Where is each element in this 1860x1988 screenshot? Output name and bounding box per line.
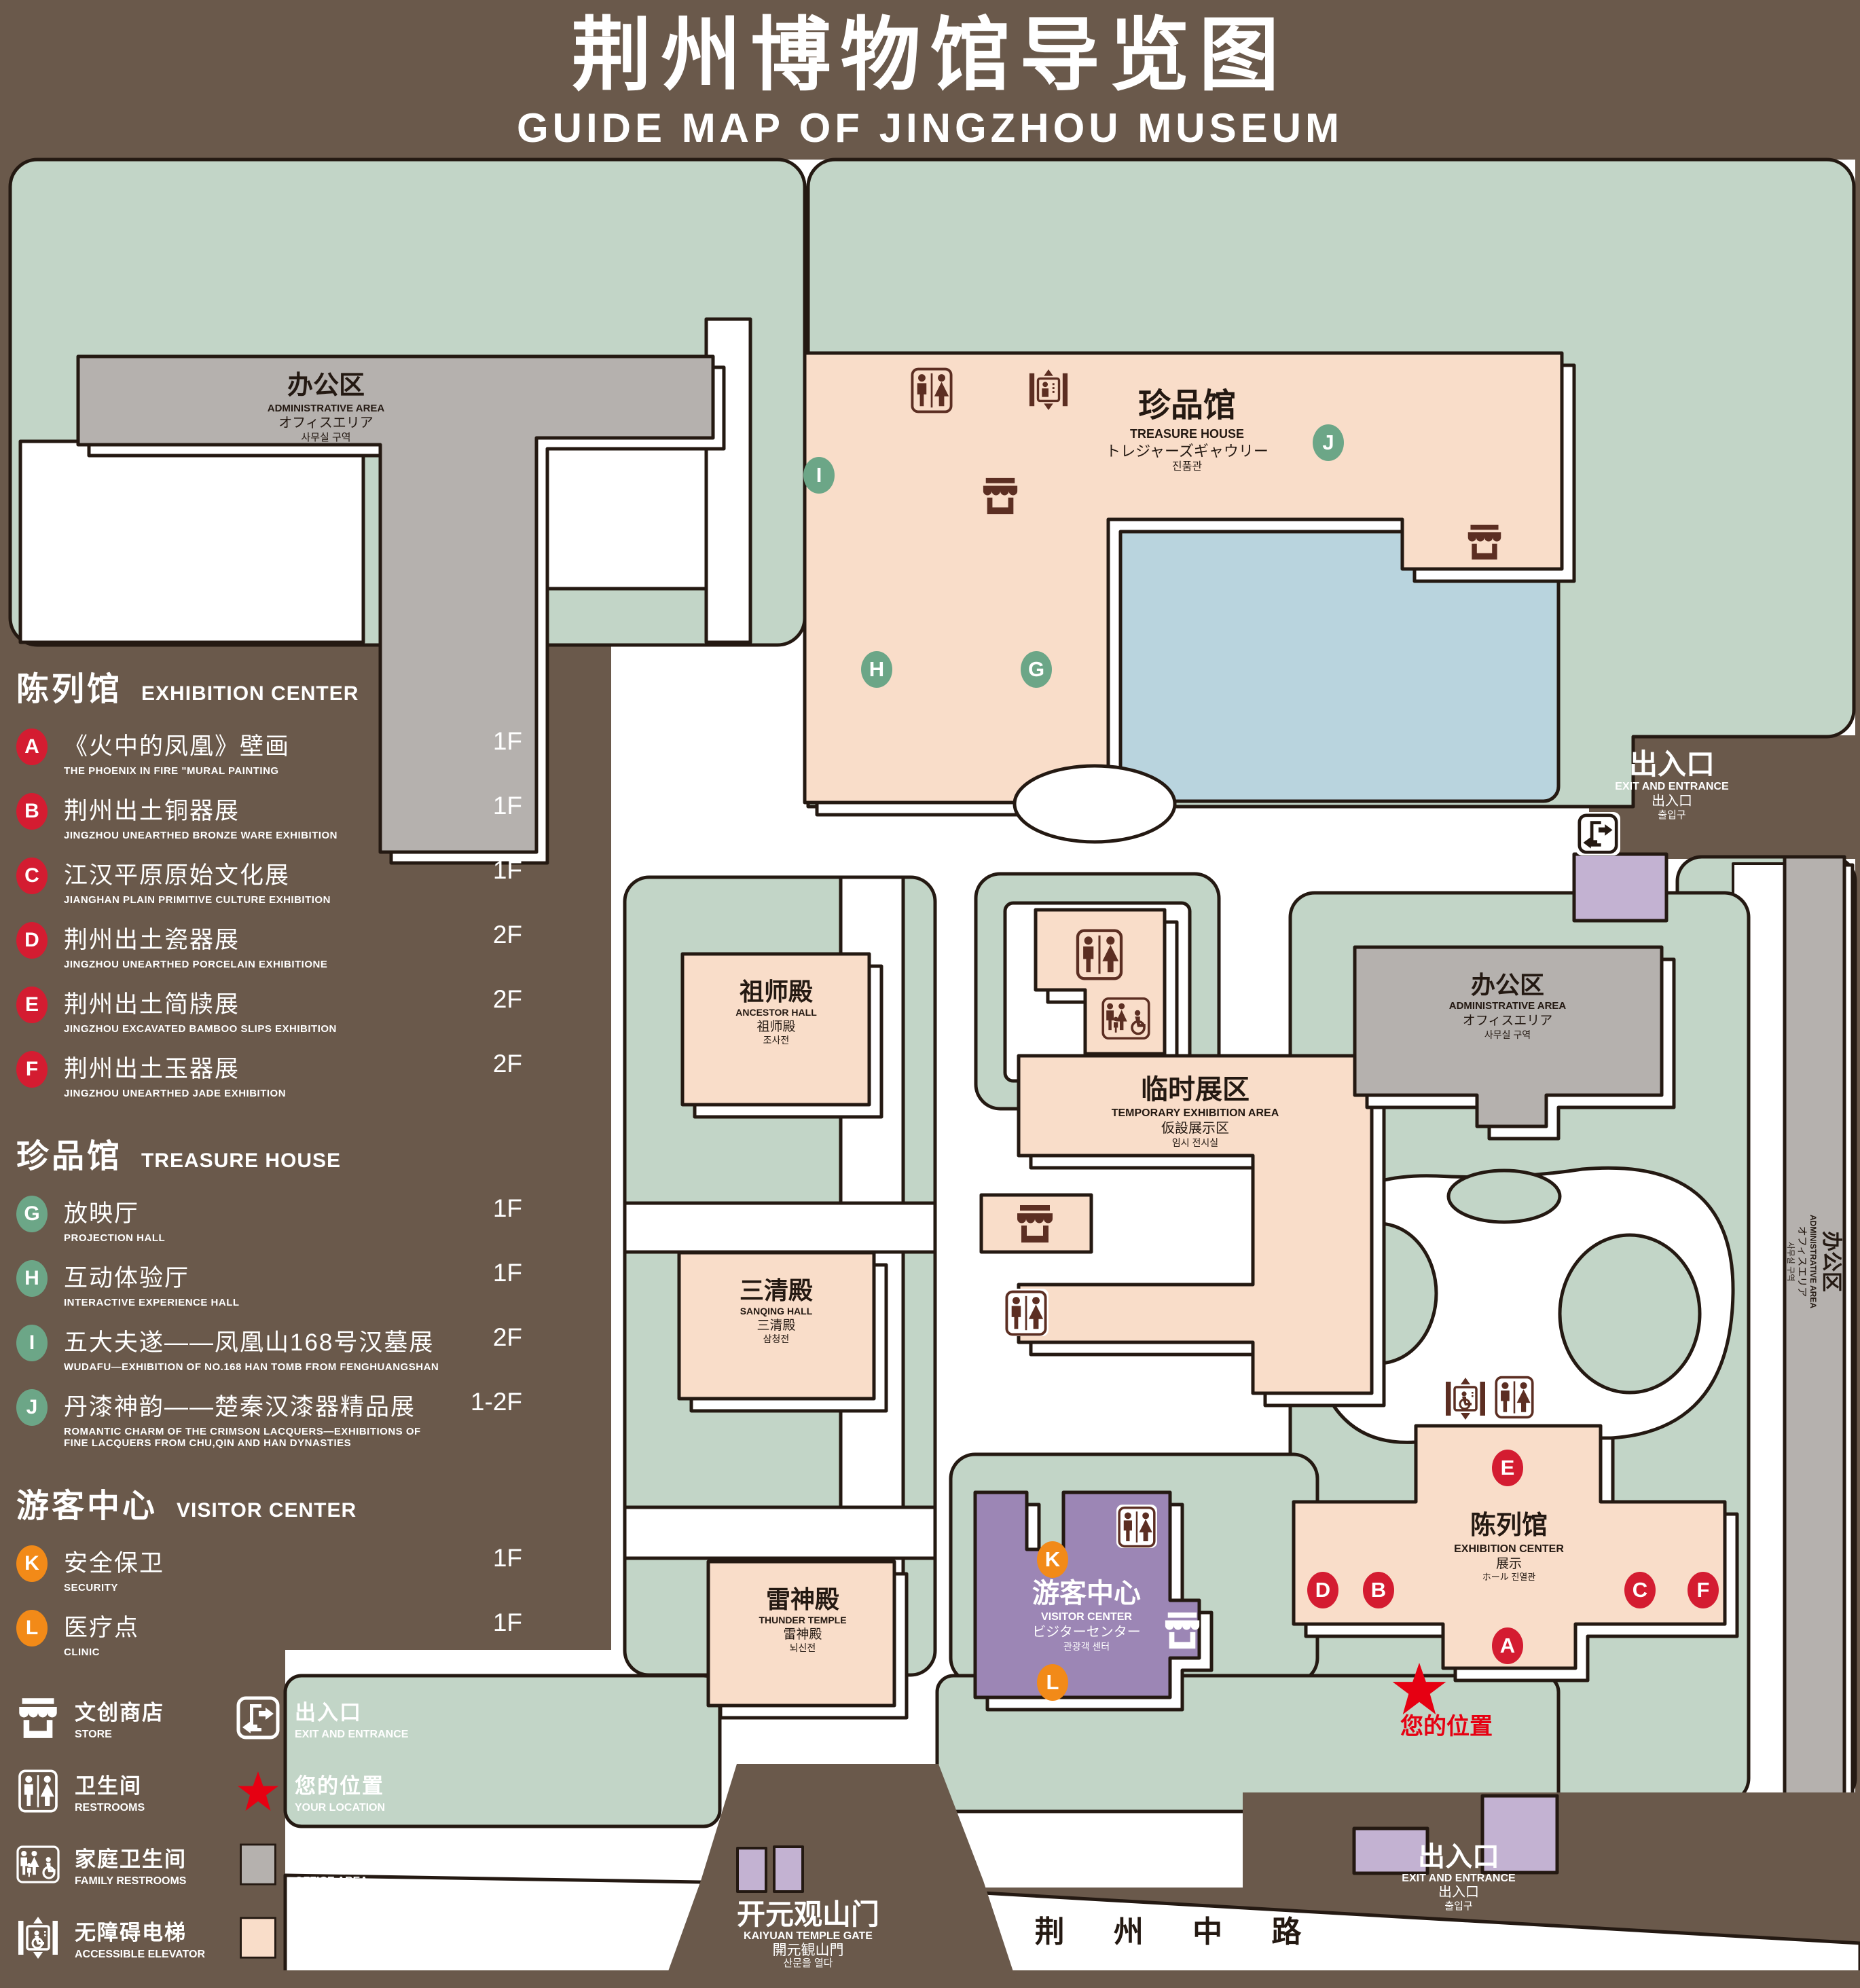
section-title-zh: 陈列馆 bbox=[16, 662, 122, 710]
guide-map-poster: 荆州博物馆导览图 GUIDE MAP OF JINGZHOU MUSEUM 办公… bbox=[0, 0, 1860, 1988]
item-letter-badge: L bbox=[16, 1610, 48, 1646]
facility-icon bbox=[236, 1840, 280, 1889]
item-name-en: JINGZHOU UNEARTHED PORCELAIN EXHIBITIONE bbox=[64, 959, 444, 970]
item-name-en: WUDAFU—EXHIBITION OF NO.168 HAN TOMB FRO… bbox=[64, 1361, 444, 1373]
facility-item: 出入口 EXIT AND ENTRANCE bbox=[236, 1693, 522, 1742]
facility-item: 无障碍电梯 ACCESSIBLE ELEVATOR bbox=[16, 1913, 232, 1962]
legend-item: F 荆州出土玉器展 JINGZHOU UNEARTHED JADE EXHIBI… bbox=[16, 1050, 522, 1099]
facility-name-en: FAMILY RESTROOMS bbox=[75, 1875, 187, 1888]
item-letter-badge: A bbox=[16, 729, 48, 765]
label-visitor-center: 游客中心 VISITOR CENTER ビジターセンター 관광객 센터 bbox=[978, 1577, 1195, 1653]
section-title-en: TREASURE HOUSE bbox=[141, 1149, 341, 1173]
item-name-en: PROJECTION HALL bbox=[64, 1232, 444, 1244]
facility-item: 您的位置 YOUR LOCATION bbox=[236, 1767, 522, 1816]
lake-shore bbox=[1015, 766, 1175, 842]
legend-item-list: K 安全保卫 SECURITY 1F L 医疗点 CLINIC bbox=[16, 1544, 522, 1658]
facility-name-zh: 出入口 bbox=[295, 1695, 408, 1726]
item-letter-badge: I bbox=[16, 1325, 48, 1361]
item-name-en: JIANGHAN PLAIN PRIMITIVE CULTURE EXHIBIT… bbox=[64, 894, 444, 906]
item-name-zh: 《火中的凤凰》壁画 bbox=[64, 727, 460, 762]
map-badge-j: J bbox=[1313, 424, 1344, 461]
legend-section-exhibition-center: 陈列馆 EXHIBITION CENTER A 《火中的凤凰》壁画 THE PH… bbox=[16, 662, 522, 1099]
facility-icon bbox=[16, 1840, 60, 1889]
facility-item: 展示区域 DISPLAY AREA bbox=[236, 1913, 522, 1962]
legend-item: I 五大夫遂——凤凰山168号汉墓展 WUDAFU—EXHIBITION OF … bbox=[16, 1323, 522, 1373]
map-badge-i: I bbox=[803, 457, 835, 494]
facility-item: 文创商店 STORE bbox=[16, 1693, 232, 1742]
item-letter-badge: F bbox=[16, 1051, 48, 1088]
section-title-en: VISITOR CENTER bbox=[177, 1499, 357, 1522]
facility-name-en: EXIT AND ENTRANCE bbox=[295, 1729, 408, 1741]
legend-item: G 放映厅 PROJECTION HALL 1F bbox=[16, 1194, 522, 1244]
facility-name-zh: 无障碍电梯 bbox=[75, 1915, 205, 1946]
item-floor: 1F bbox=[460, 1544, 522, 1572]
facility-name-zh: 文创商店 bbox=[75, 1695, 164, 1726]
map-badge-d: D bbox=[1307, 1572, 1338, 1608]
facility-item: 办公区域 OFFICE AREA bbox=[236, 1840, 522, 1889]
item-floor: 1F bbox=[460, 727, 522, 756]
map-badge-k: K bbox=[1037, 1541, 1068, 1578]
item-name-zh: 安全保卫 bbox=[64, 1544, 460, 1579]
gate-pillar bbox=[737, 1848, 766, 1892]
section-title-en: EXHIBITION CENTER bbox=[141, 682, 359, 705]
label-temporary-exhibition: 临时展区 TEMPORARY EXHIBITION AREA 仮設展示区 임시 … bbox=[1036, 1073, 1355, 1149]
item-floor: 1F bbox=[460, 1608, 522, 1637]
item-letter-badge: J bbox=[16, 1389, 48, 1426]
poster-header: 荆州博物馆导览图 GUIDE MAP OF JINGZHOU MUSEUM bbox=[0, 12, 1860, 151]
label-ancestor-hall: 祖师殿 ANCESTOR HALL 祖师殿 조사전 bbox=[685, 976, 868, 1047]
facility-icon bbox=[16, 1767, 60, 1816]
label-thunder-temple: 雷神殿 THUNDER TEMPLE 雷神殿 뇌신전 bbox=[708, 1584, 898, 1655]
label-exit-south: 出入口 EXIT AND ENTRANCE 出入口 출입구 bbox=[1350, 1841, 1567, 1913]
map-badge-b: B bbox=[1363, 1572, 1394, 1608]
item-name-zh: 丹漆神韵——楚秦汉漆器精品展 bbox=[64, 1388, 460, 1422]
garden-island bbox=[1560, 1235, 1700, 1393]
facility-name-en: DISPLAY AREA bbox=[295, 1949, 384, 1961]
map-badge-g: G bbox=[1021, 651, 1052, 688]
legend-item: H 互动体验厅 INTERACTIVE EXPERIENCE HALL 1F bbox=[16, 1259, 522, 1308]
item-name-en: JINGZHOU EXCAVATED BAMBOO SLIPS EXHIBITI… bbox=[64, 1023, 444, 1035]
legend-item: L 医疗点 CLINIC 1F bbox=[16, 1608, 522, 1658]
legend-panel: 陈列馆 EXHIBITION CENTER A 《火中的凤凰》壁画 THE PH… bbox=[16, 662, 522, 1988]
item-letter-badge: G bbox=[16, 1196, 48, 1232]
item-name-zh: 江汉平原原始文化展 bbox=[64, 856, 460, 891]
facility-icon bbox=[16, 1913, 60, 1962]
item-name-zh: 放映厅 bbox=[64, 1194, 460, 1229]
item-floor: 1F bbox=[460, 1259, 522, 1287]
item-letter-badge: H bbox=[16, 1260, 48, 1297]
building-store-kiosk bbox=[981, 1195, 1091, 1252]
legend-item: B 荆州出土铜器展 JINGZHOU UNEARTHED BRONZE WARE… bbox=[16, 792, 522, 841]
legend-item: D 荆州出土瓷器展 JINGZHOU UNEARTHED PORCELAIN E… bbox=[16, 921, 522, 970]
legend-item: E 荆州出土简牍展 JINGZHOU EXCAVATED BAMBOO SLIP… bbox=[16, 985, 522, 1035]
facility-name-en: STORE bbox=[75, 1729, 164, 1741]
item-floor: 2F bbox=[460, 1323, 522, 1352]
legend-item: A 《火中的凤凰》壁画 THE PHOENIX IN FIRE "MURAL P… bbox=[16, 727, 522, 777]
item-floor: 2F bbox=[460, 985, 522, 1014]
garden-island bbox=[1448, 1171, 1560, 1222]
item-floor: 2F bbox=[460, 1050, 522, 1078]
label-sanqing-hall: 三清殿 SANQING HALL 三清殿 삼청전 bbox=[681, 1275, 871, 1346]
legend-item-list: A 《火中的凤凰》壁画 THE PHOENIX IN FIRE "MURAL P… bbox=[16, 727, 522, 1099]
label-admin-east-strip: 办公区 ADMINISTRATIVE AREA オフィスエリア 사무실 구역 bbox=[1785, 1153, 1844, 1370]
item-floor: 1F bbox=[460, 856, 522, 885]
facility-name-zh: 卫生间 bbox=[75, 1769, 145, 1799]
item-name-en: CLINIC bbox=[64, 1646, 444, 1658]
item-letter-badge: B bbox=[16, 793, 48, 830]
item-floor: 1-2F bbox=[460, 1388, 522, 1416]
label-your-location: 您的位置 bbox=[1358, 1712, 1535, 1742]
item-floor: 1F bbox=[460, 1194, 522, 1223]
item-name-en: ROMANTIC CHARM OF THE CRIMSON LACQUERS—E… bbox=[64, 1426, 444, 1449]
label-admin-east: 办公区 ADMINISTRATIVE AREA オフィスエリア 사무실 구역 bbox=[1365, 970, 1650, 1041]
item-name-en: JINGZHOU UNEARTHED JADE EXHIBITION bbox=[64, 1088, 444, 1099]
item-name-zh: 医疗点 bbox=[64, 1608, 460, 1643]
label-treasure-house: 珍品馆 TREASURE HOUSE トレジャーズギャウリー 진품관 bbox=[1004, 386, 1370, 474]
page-subtitle: GUIDE MAP OF JINGZHOU MUSEUM bbox=[0, 105, 1860, 151]
legend-section-treasure-house: 珍品馆 TREASURE HOUSE G 放映厅 PROJECTION HALL… bbox=[16, 1129, 522, 1449]
facility-name-en: YOUR LOCATION bbox=[295, 1802, 385, 1814]
item-name-en: SECURITY bbox=[64, 1582, 444, 1594]
facility-name-zh: 展示区域 bbox=[295, 1915, 384, 1946]
map-badge-c: C bbox=[1624, 1572, 1656, 1608]
legend-item: J 丹漆神韵——楚秦汉漆器精品展 ROMANTIC CHARM OF THE C… bbox=[16, 1388, 522, 1449]
facility-icon bbox=[236, 1767, 280, 1816]
facility-icon bbox=[236, 1913, 280, 1962]
label-road: 荆 州 中 路 bbox=[961, 1913, 1396, 1951]
item-name-zh: 荆州出土铜器展 bbox=[64, 792, 460, 826]
map-badge-l: L bbox=[1037, 1664, 1068, 1701]
item-name-en: THE PHOENIX IN FIRE "MURAL PAINTING bbox=[64, 765, 444, 777]
facility-name-en: OFFICE AREA bbox=[295, 1875, 384, 1888]
legend-item-list: G 放映厅 PROJECTION HALL 1F H 互动体验厅 INTERAC… bbox=[16, 1194, 522, 1449]
label-exhibition-center: 陈列馆 EXHIBITION CENTER 展示 ホール 진열관 bbox=[1387, 1510, 1631, 1583]
facility-legend: 文创商店 STORE 出入口 EXIT AND ENTRANCE bbox=[16, 1693, 522, 1988]
item-name-zh: 五大夫遂——凤凰山168号汉墓展 bbox=[64, 1323, 460, 1358]
label-exit-northeast: 出入口 EXIT AND ENTRANCE 出入口 출입구 bbox=[1563, 748, 1781, 821]
item-floor: 2F bbox=[460, 921, 522, 949]
legend-item: C 江汉平原原始文化展 JIANGHAN PLAIN PRIMITIVE CUL… bbox=[16, 856, 522, 906]
facility-icon bbox=[236, 1693, 280, 1742]
facility-name-en: ACCESSIBLE ELEVATOR bbox=[75, 1949, 205, 1961]
section-title-zh: 珍品馆 bbox=[16, 1129, 122, 1177]
label-kaiyuan-gate: 开元观山门 KAIYUAN TEMPLE GATE 開元観山門 산문을 열다 bbox=[686, 1898, 930, 1970]
legend-section-visitor-center: 游客中心 VISITOR CENTER K 安全保卫 SECURITY 1F bbox=[16, 1479, 522, 1658]
facility-name-zh: 办公区域 bbox=[295, 1842, 384, 1873]
item-name-zh: 荆州出土玉器展 bbox=[64, 1050, 460, 1084]
item-floor: 1F bbox=[460, 792, 522, 820]
facility-name-zh: 家庭卫生间 bbox=[75, 1842, 187, 1873]
section-title-zh: 游客中心 bbox=[16, 1479, 158, 1526]
item-letter-badge: K bbox=[16, 1545, 48, 1582]
item-name-zh: 互动体验厅 bbox=[64, 1259, 460, 1293]
item-letter-badge: C bbox=[16, 858, 48, 894]
map-badge-e: E bbox=[1492, 1450, 1523, 1486]
item-name-zh: 荆州出土瓷器展 bbox=[64, 921, 460, 955]
item-letter-badge: D bbox=[16, 922, 48, 959]
facility-name-zh: 您的位置 bbox=[295, 1769, 385, 1799]
facility-item: 卫生间 RESTROOMS bbox=[16, 1767, 232, 1816]
map-badge-f: F bbox=[1688, 1572, 1719, 1608]
item-name-zh: 荆州出土简牍展 bbox=[64, 985, 460, 1020]
label-admin-northwest: 办公区 ADMINISTRATIVE AREA オフィスエリア 사무실 구역 bbox=[180, 370, 472, 445]
item-name-en: JINGZHOU UNEARTHED BRONZE WARE EXHIBITIO… bbox=[64, 830, 444, 841]
facility-icon bbox=[16, 1693, 60, 1742]
gate-pillar bbox=[774, 1847, 803, 1892]
map-badge-h: H bbox=[861, 651, 892, 688]
building-lavender-ne bbox=[1574, 854, 1666, 921]
facility-item: 家庭卫生间 FAMILY RESTROOMS bbox=[16, 1840, 232, 1889]
map-badge-a: A bbox=[1492, 1627, 1523, 1664]
legend-item: K 安全保卫 SECURITY 1F bbox=[16, 1544, 522, 1594]
page-title: 荆州博物馆导览图 bbox=[0, 12, 1860, 100]
item-name-en: INTERACTIVE EXPERIENCE HALL bbox=[64, 1297, 444, 1308]
facility-name-en: RESTROOMS bbox=[75, 1802, 145, 1814]
item-letter-badge: E bbox=[16, 987, 48, 1023]
